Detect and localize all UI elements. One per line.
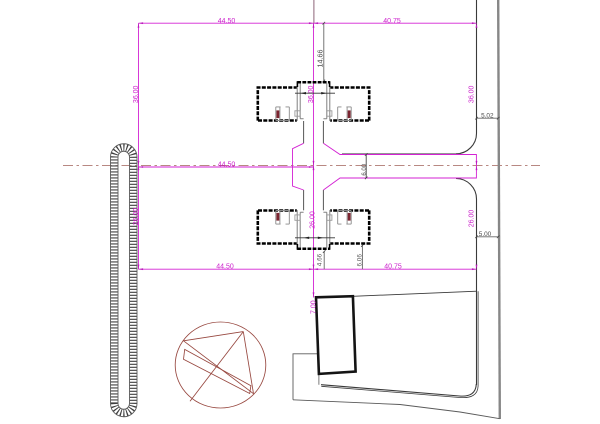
- svg-text:26.00: 26.00: [469, 210, 476, 228]
- svg-text:36.00: 36.00: [133, 85, 140, 103]
- svg-text:44.50: 44.50: [216, 264, 234, 271]
- svg-text:40.75: 40.75: [383, 18, 401, 25]
- svg-text:26.00: 26.00: [310, 211, 317, 229]
- svg-text:5.00: 5.00: [479, 231, 492, 238]
- svg-text:36.00: 36.00: [469, 85, 476, 103]
- svg-text:6.00: 6.00: [362, 163, 368, 175]
- svg-text:14.66: 14.66: [316, 50, 325, 68]
- svg-text:5.02: 5.02: [481, 113, 494, 120]
- svg-text:40.75: 40.75: [384, 264, 402, 271]
- svg-text:7.00: 7.00: [310, 300, 317, 314]
- svg-text:44.50: 44.50: [218, 18, 236, 25]
- svg-text:44.50: 44.50: [218, 162, 236, 169]
- svg-text:26.00: 26.00: [133, 208, 140, 226]
- svg-text:36.00: 36.00: [308, 85, 315, 103]
- svg-text:6.06: 6.06: [357, 254, 364, 267]
- svg-text:4.66: 4.66: [317, 253, 324, 266]
